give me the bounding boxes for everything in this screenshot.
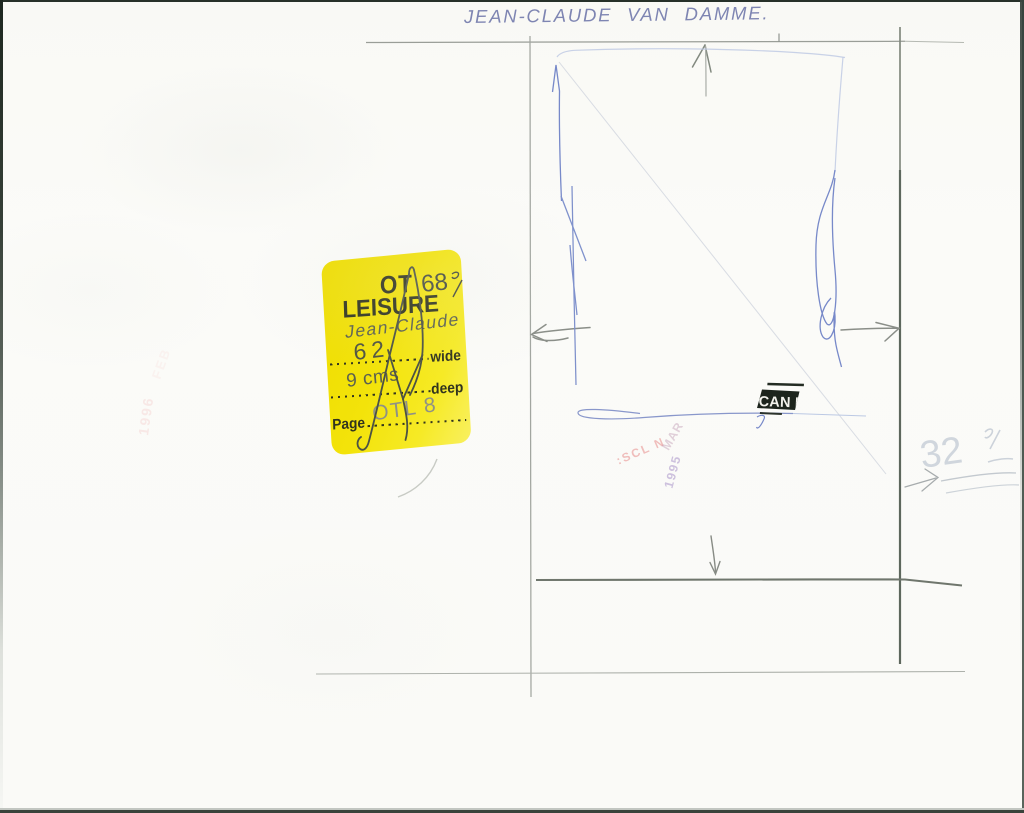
svg-text:68: 68 <box>420 268 449 298</box>
